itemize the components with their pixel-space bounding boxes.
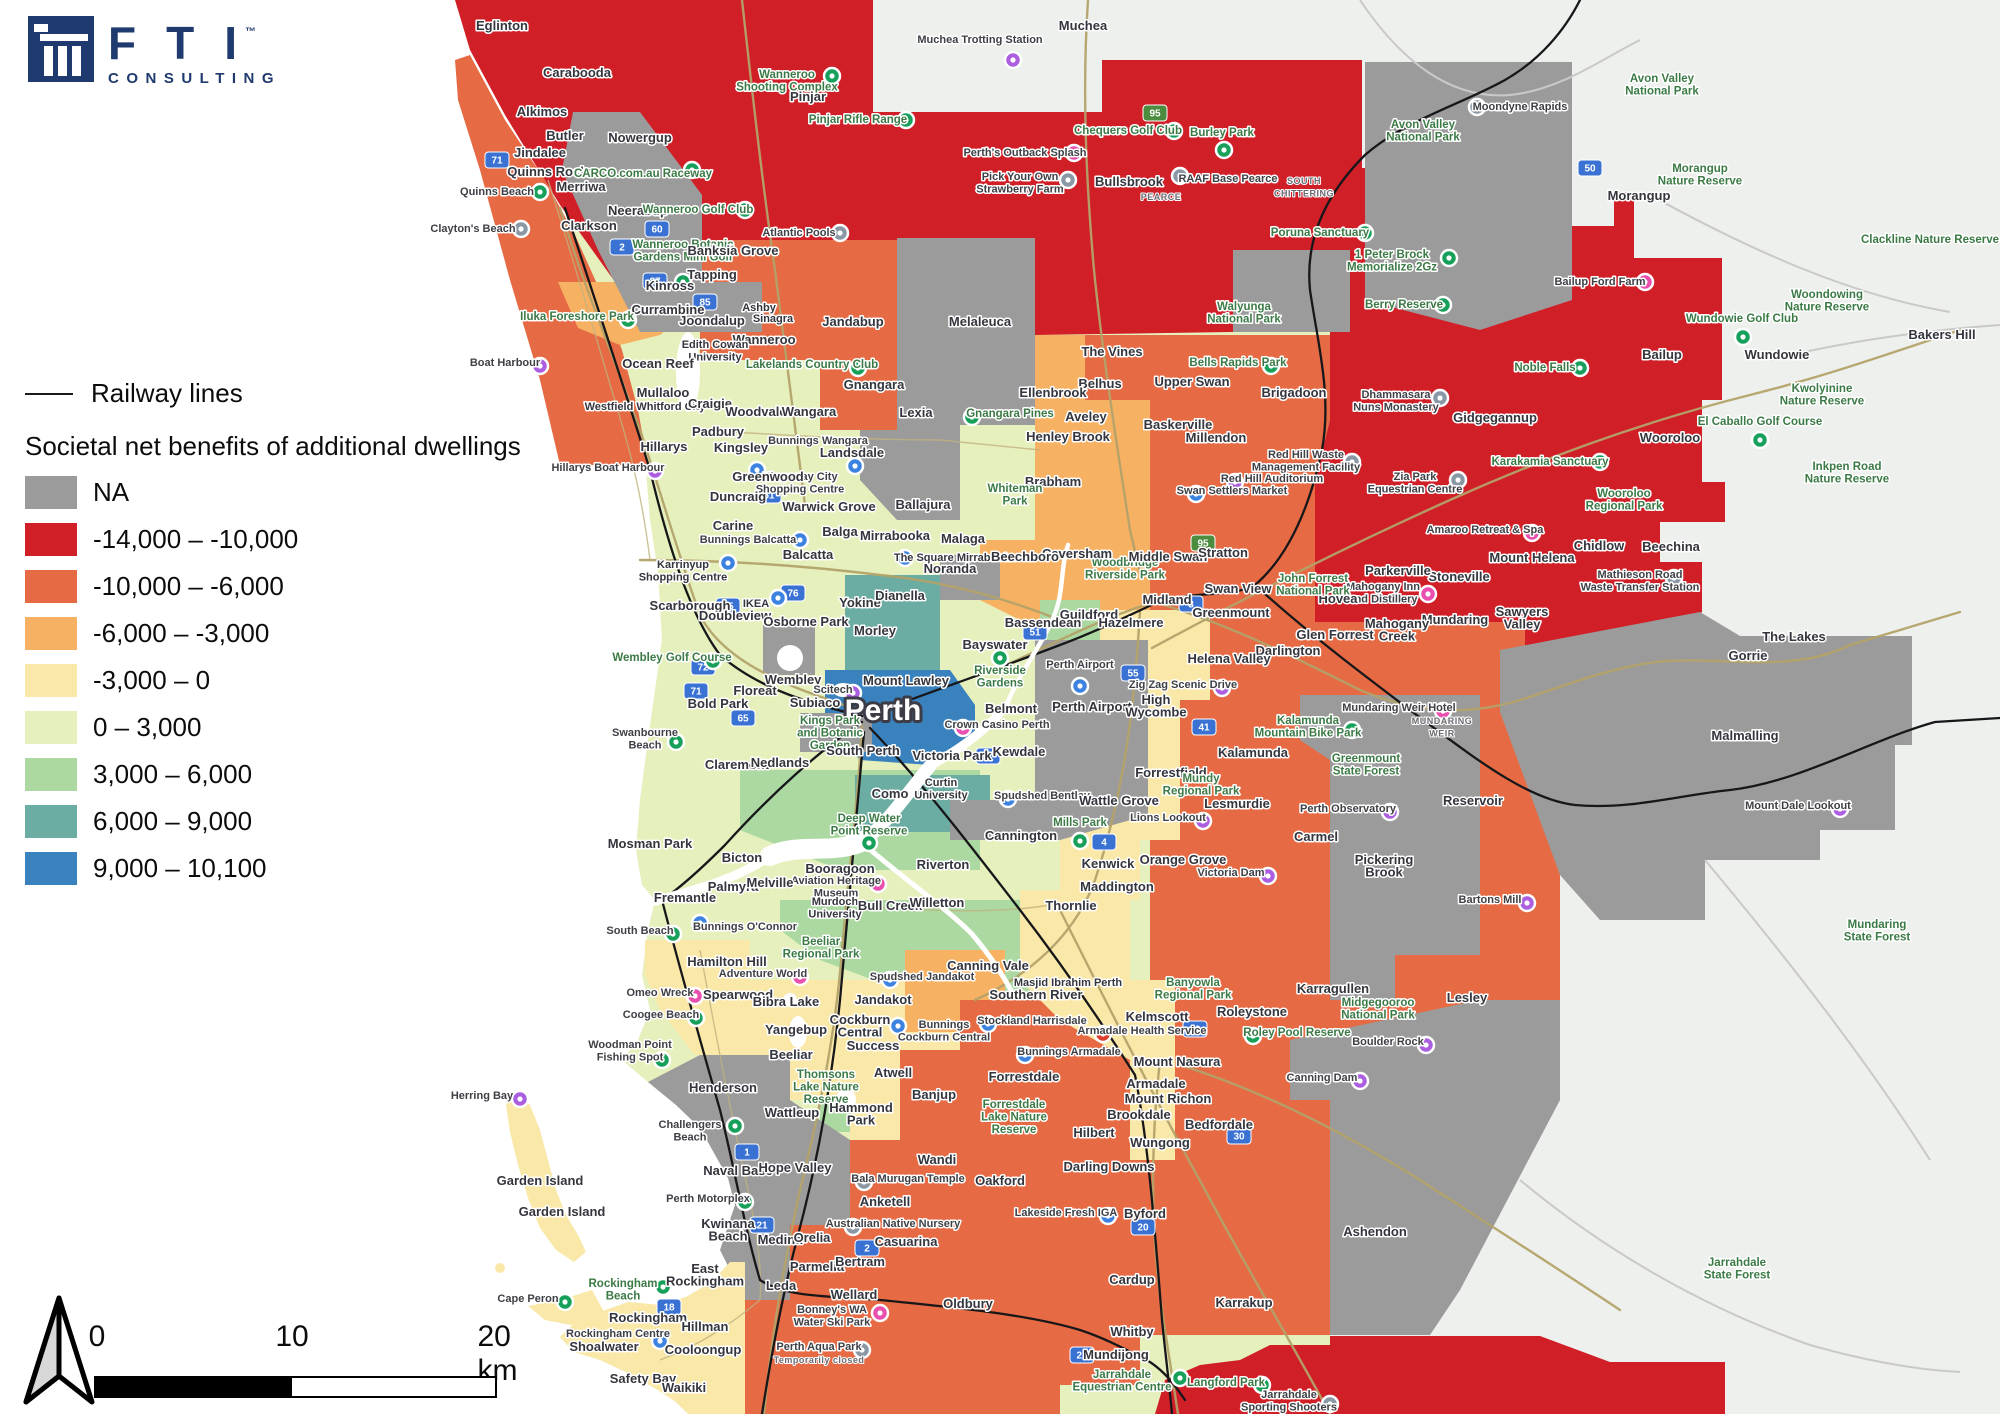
map-label: Langford Park bbox=[1187, 1377, 1266, 1389]
route-shield: 2 bbox=[610, 239, 634, 255]
legend-class-label: 3,000 – 6,000 bbox=[93, 759, 252, 790]
map-label: Karakamia Sanctuary bbox=[1492, 456, 1610, 468]
map-label: Melville bbox=[747, 875, 794, 890]
legend-swatch bbox=[25, 758, 77, 791]
legend-item: -3,000 – 0 bbox=[25, 664, 585, 697]
map-label: Henderson bbox=[689, 1080, 757, 1095]
svg-text:60: 60 bbox=[651, 225, 663, 236]
map-label: Wooroloo bbox=[1640, 430, 1700, 445]
map-label: Bayswater bbox=[962, 637, 1027, 652]
legend-swatch bbox=[25, 852, 77, 885]
fti-consulting-logo: FTI™ CONSULTING bbox=[28, 16, 281, 87]
map-label: Reservoir bbox=[1443, 793, 1503, 808]
map-label: Bedfordale bbox=[1185, 1117, 1253, 1132]
poi-pin bbox=[720, 555, 736, 571]
map-label: South Beach bbox=[606, 925, 674, 937]
poi-pin bbox=[1005, 52, 1021, 68]
map-label: Adventure World bbox=[719, 968, 807, 980]
map-label: WalyungaNational Park bbox=[1207, 301, 1281, 326]
map-label: Banksia Grove bbox=[687, 243, 778, 258]
map-label: KwinanaBeach bbox=[701, 1216, 755, 1244]
map-label: 1 Peter BrockMemorialize 2Gz bbox=[1347, 249, 1437, 274]
map-label: Zig Zag Scenic Drive bbox=[1129, 679, 1237, 691]
map-label: Gidgegannup bbox=[1453, 410, 1537, 425]
map-label: Middle Swan bbox=[1129, 549, 1208, 564]
map-label: Muchea Trotting Station bbox=[917, 34, 1043, 46]
map-label: Bicton bbox=[722, 850, 763, 865]
map-label: Parkerville bbox=[1365, 563, 1431, 578]
map-label: Mundaring Weir Hotel bbox=[1342, 702, 1455, 714]
map-label: Hillarys bbox=[641, 439, 688, 454]
map-label: Brookdale bbox=[1107, 1107, 1171, 1122]
svg-text:76: 76 bbox=[787, 589, 799, 600]
map-label: Southern River bbox=[989, 987, 1082, 1002]
legend-title: Societal net benefits of additional dwel… bbox=[25, 431, 585, 462]
map-label: Bailup Ford Farm bbox=[1554, 276, 1645, 288]
map-label: Landsdale bbox=[820, 445, 884, 460]
map-label: Morangup bbox=[1608, 188, 1671, 203]
map-label: Coogee Beach bbox=[623, 1009, 700, 1021]
poi-pin bbox=[1420, 586, 1436, 602]
scale-tick-0: 0 bbox=[89, 1320, 106, 1354]
map-label: Beechina bbox=[1642, 539, 1701, 554]
scale-tick-10: 10 bbox=[275, 1320, 308, 1354]
map-label: Millendon bbox=[1186, 430, 1247, 445]
map-label: Victoria Dam bbox=[1197, 867, 1264, 879]
map-label: Hope Valley bbox=[759, 1160, 833, 1175]
legend-class-label: -3,000 – 0 bbox=[93, 665, 210, 696]
railway-line-swatch bbox=[25, 393, 73, 395]
map-label: Eglinton bbox=[476, 18, 528, 33]
poi-pin bbox=[1735, 329, 1751, 345]
map-label: GreenmountState Forest bbox=[1332, 753, 1401, 778]
map-label: Waikiki bbox=[662, 1380, 706, 1395]
map-label: Wangara bbox=[782, 404, 837, 419]
map-label: Morley bbox=[854, 623, 897, 638]
legend-class-label: 6,000 – 9,000 bbox=[93, 806, 252, 837]
map-label: Kalamunda bbox=[1218, 745, 1289, 760]
map-label: Mullaloo bbox=[637, 385, 690, 400]
map-label: Perth Observatory bbox=[1300, 803, 1397, 815]
map-label: Lions Lookout bbox=[1130, 812, 1206, 824]
map-label: Shoalwater bbox=[569, 1339, 638, 1354]
map-label: Perth Aqua Park bbox=[776, 1341, 862, 1353]
map-label: Spudshed Jandakot bbox=[870, 971, 975, 983]
map-label: Wattleup bbox=[765, 1105, 819, 1120]
route-shield: 4 bbox=[1092, 834, 1116, 850]
map-label: Mundijong bbox=[1083, 1347, 1149, 1362]
legend-swatch bbox=[25, 476, 77, 509]
legend-item: 3,000 – 6,000 bbox=[25, 758, 585, 791]
svg-text:2: 2 bbox=[619, 243, 625, 254]
map-label: Chequers Golf Club bbox=[1074, 125, 1182, 137]
legend-class-label: -14,000 – -10,000 bbox=[93, 524, 298, 555]
poi-pin bbox=[727, 1118, 743, 1134]
map-label: Booragoon bbox=[805, 861, 874, 876]
map-label: Cannington bbox=[985, 828, 1057, 843]
map-label: Beeliar bbox=[769, 1047, 812, 1062]
map-label: Lakeside Fresh IGA bbox=[1015, 1207, 1118, 1219]
map-label: Bakers Hill bbox=[1908, 327, 1975, 342]
map-label: Stratton bbox=[1198, 545, 1248, 560]
map-label: Upper Swan bbox=[1154, 374, 1229, 389]
map-label: Woodvale bbox=[725, 404, 786, 419]
map-label: Kelmscott bbox=[1126, 1009, 1190, 1024]
scale-bar-box bbox=[94, 1376, 497, 1398]
map-label: Mirrabooka bbox=[860, 528, 931, 543]
map-label: Beechboro bbox=[991, 549, 1059, 564]
map-label: Kenwick bbox=[1082, 856, 1136, 871]
map-label: South Perth bbox=[826, 743, 900, 758]
map-label: Melaleuca bbox=[949, 314, 1012, 329]
map-label: Wungong bbox=[1130, 1135, 1190, 1150]
map-label: Riverton bbox=[917, 857, 970, 872]
map-label: Garden Island bbox=[497, 1173, 584, 1188]
route-shield: 60 bbox=[645, 221, 669, 237]
poi-pin bbox=[1072, 678, 1088, 694]
map-label: Tapping bbox=[687, 267, 737, 282]
map-label: Mosman Park bbox=[608, 836, 693, 851]
map-label: The Lakes bbox=[1762, 629, 1826, 644]
map-label: Banjup bbox=[912, 1087, 956, 1102]
map-label: Oakford bbox=[975, 1173, 1025, 1188]
map-label: Yangebup bbox=[765, 1022, 827, 1037]
legend-class-label: 0 – 3,000 bbox=[93, 712, 201, 743]
map-label: Gnangara Pines bbox=[966, 408, 1054, 420]
poi-pin bbox=[532, 184, 548, 200]
legend-class-label: NA bbox=[93, 477, 129, 508]
map-label: Mills Park bbox=[1053, 817, 1107, 829]
map-label: Noranda bbox=[924, 561, 978, 576]
legend-swatch bbox=[25, 617, 77, 650]
map-label: Iluka Foreshore Park bbox=[520, 311, 634, 323]
map-label: Como bbox=[872, 786, 909, 801]
map-label: KwolyinineNature Reserve bbox=[1780, 383, 1864, 408]
map-label: CARCO.com.au Raceway bbox=[574, 168, 713, 180]
map-label: RiversideGardens bbox=[974, 665, 1026, 690]
map-label: Wellard bbox=[831, 1287, 878, 1302]
map-label: Bailup bbox=[1642, 347, 1682, 362]
map-label: Hilbert bbox=[1073, 1125, 1115, 1140]
poi-pin bbox=[992, 650, 1008, 666]
map-label: Canning Dam bbox=[1287, 1072, 1358, 1084]
map-label: Poruna Sanctuary bbox=[1271, 227, 1370, 239]
legend-item: 9,000 – 10,100 bbox=[25, 852, 585, 885]
map-label: Karragullen bbox=[1297, 981, 1369, 996]
legend-swatch bbox=[25, 805, 77, 838]
map-label: Stoneville bbox=[1428, 569, 1489, 584]
route-shield: 1 bbox=[735, 1144, 759, 1160]
map-label: Willetton bbox=[910, 895, 965, 910]
map-label: Helena Valley bbox=[1187, 651, 1271, 666]
poi-pin bbox=[1172, 1370, 1188, 1386]
route-shield: 95 bbox=[1143, 105, 1167, 121]
map-label: Armadale bbox=[1126, 1076, 1185, 1091]
map-label: Brigadoon bbox=[1262, 385, 1327, 400]
map-label: Duncraig bbox=[710, 489, 766, 504]
map-label: Quinns Beach bbox=[460, 186, 534, 198]
legend-railway-row: Railway lines bbox=[25, 378, 585, 409]
legend-item: -6,000 – -3,000 bbox=[25, 617, 585, 650]
legend-class-label: -10,000 – -6,000 bbox=[93, 571, 284, 602]
map-label: Omeo Wreck bbox=[626, 987, 694, 999]
legend: Railway lines Societal net benefits of a… bbox=[25, 378, 585, 899]
map-label: Orange Grove bbox=[1140, 852, 1227, 867]
map-label: Balcatta bbox=[783, 547, 834, 562]
map-label: Gorrie bbox=[1728, 648, 1767, 663]
map-label: Greenwood bbox=[732, 469, 804, 484]
map-label: Wundowie bbox=[1745, 347, 1810, 362]
scale-bar: 0 10 20 km bbox=[0, 1290, 560, 1414]
poi-pin bbox=[512, 1091, 528, 1107]
map-label: Red Hill Auditorium bbox=[1221, 473, 1323, 485]
map-label: Ocean Reef bbox=[622, 356, 694, 371]
map-label: Carmel bbox=[1294, 829, 1338, 844]
map-label: Bartons Mill bbox=[1459, 894, 1522, 906]
map-label: Karrakup bbox=[1215, 1295, 1272, 1310]
map-label: Padbury bbox=[692, 424, 745, 439]
railway-label: Railway lines bbox=[91, 378, 243, 409]
map-label: Subiaco bbox=[790, 695, 841, 710]
map-label: Swan View bbox=[1205, 581, 1273, 596]
map-label: Aveley bbox=[1065, 409, 1107, 424]
poi-pin bbox=[1441, 250, 1457, 266]
brand-name: FTI bbox=[108, 17, 267, 69]
fti-column-icon bbox=[28, 16, 94, 82]
map-label: Moondyne Rapids bbox=[1473, 101, 1568, 113]
map-label: Darling Downs bbox=[1063, 1159, 1154, 1174]
map-label: Cooloongup bbox=[665, 1342, 742, 1357]
map-label: John ForrestNational Park bbox=[1276, 573, 1350, 598]
map-label: Oldbury bbox=[943, 1296, 994, 1311]
poi-pin bbox=[847, 458, 863, 474]
map-label: Muchea bbox=[1059, 18, 1108, 33]
map-label: Chidlow bbox=[1574, 538, 1625, 553]
map-label: Anketell bbox=[860, 1194, 911, 1209]
map-label: Perth Airport bbox=[1046, 659, 1114, 671]
map-label: Spudshed Bentley bbox=[994, 790, 1091, 802]
map-label: Australian Native Nursery bbox=[826, 1218, 961, 1230]
map-label: Roley Pool Reserve bbox=[1243, 1027, 1350, 1039]
map-label: CockburnCentral bbox=[830, 1012, 891, 1040]
map-label: Balga bbox=[822, 524, 858, 539]
map-label: Stockland Harrisdale bbox=[977, 1015, 1086, 1027]
map-label: Butler bbox=[546, 128, 584, 143]
map-label: Osborne Park bbox=[763, 614, 849, 629]
map-label: Pinjar Rifle Range bbox=[809, 114, 907, 126]
map-label: Hazelmere bbox=[1098, 615, 1163, 630]
map-label: Woodman PointFishing Spot bbox=[588, 1039, 672, 1064]
map-label: Byford bbox=[1124, 1206, 1166, 1221]
poi-pin bbox=[1072, 833, 1088, 849]
legend-classes: NA-14,000 – -10,000-10,000 – -6,000-6,00… bbox=[25, 476, 585, 885]
svg-text:2: 2 bbox=[864, 1244, 870, 1255]
map-label: Garden Island bbox=[519, 1204, 606, 1219]
map-label: Kewdale bbox=[993, 744, 1046, 759]
svg-text:30: 30 bbox=[1233, 1132, 1245, 1143]
map-label: Berry Reserve bbox=[1365, 299, 1443, 311]
map-label: Bells Rapids Park bbox=[1189, 357, 1287, 369]
map-label: Mount Dale Lookout bbox=[1745, 800, 1851, 812]
route-shield: 71 bbox=[485, 152, 509, 168]
map-label: Jindalee bbox=[514, 145, 566, 160]
map-label: Roleystone bbox=[1217, 1004, 1287, 1019]
svg-text:21: 21 bbox=[756, 1221, 768, 1232]
map-label: Inkpen RoadNature Reserve bbox=[1805, 461, 1889, 486]
poi-pin bbox=[1216, 142, 1232, 158]
scale-bar-fill bbox=[96, 1378, 292, 1396]
svg-text:4: 4 bbox=[1101, 838, 1107, 849]
map-label: Pinjar bbox=[790, 89, 826, 104]
map-label: Mount Richon bbox=[1125, 1091, 1212, 1106]
svg-text:55: 55 bbox=[1127, 669, 1139, 680]
map-label: Temporarily closed bbox=[774, 1355, 865, 1365]
map-label: Mount Nasura bbox=[1134, 1054, 1221, 1069]
map-label: Bunnings Armadale bbox=[1017, 1046, 1121, 1058]
map-label: Bunnings O'Connor bbox=[693, 921, 798, 933]
map-label: Lesley bbox=[1447, 990, 1488, 1005]
legend-item: -10,000 – -6,000 bbox=[25, 570, 585, 603]
map-label: JarrahdaleState Forest bbox=[1704, 1257, 1771, 1282]
map-label: Rockingham bbox=[609, 1310, 687, 1325]
map-label: Thornlie bbox=[1045, 898, 1096, 913]
map-label: Kinross bbox=[646, 278, 694, 293]
map-label: Burley Park bbox=[1190, 127, 1255, 139]
map-label: Avon ValleyNational Park bbox=[1625, 73, 1699, 98]
legend-swatch bbox=[25, 523, 77, 556]
map-label: Lakelands Country Club bbox=[746, 359, 878, 371]
map-label: Mathieson RoadWaste Transfer Station bbox=[1581, 569, 1700, 594]
map-label: RAAF Base Pearce bbox=[1178, 173, 1277, 185]
map-label: Fremantle bbox=[654, 890, 716, 905]
map-label: Bullsbrook bbox=[1095, 174, 1164, 189]
map-label: Crown Casino Perth bbox=[944, 719, 1049, 731]
legend-item: 0 – 3,000 bbox=[25, 711, 585, 744]
map-label: Belmont bbox=[985, 701, 1038, 716]
map-label: Bunnings Balcatta bbox=[700, 534, 797, 546]
map-label: Clackline Nature Reserve bbox=[1861, 234, 1999, 246]
map-label: Doubleview bbox=[699, 608, 772, 623]
map-label: Bonney's WAWater Ski Park bbox=[794, 1304, 872, 1329]
legend-swatch bbox=[25, 570, 77, 603]
map-label: Perth's Outback Splash bbox=[963, 147, 1086, 159]
svg-text:71: 71 bbox=[491, 156, 503, 167]
map-label: Wandi bbox=[918, 1152, 957, 1167]
map-label: Wanneroo Golf Club bbox=[643, 204, 754, 216]
map-label: Nowergup bbox=[608, 130, 672, 145]
map-label: Jandabup bbox=[822, 314, 883, 329]
legend-item: NA bbox=[25, 476, 585, 509]
map-label: Atlantic Pools bbox=[762, 227, 835, 239]
poi-pin bbox=[1752, 432, 1768, 448]
route-shield: 41 bbox=[1192, 719, 1216, 735]
map-label: Jandakot bbox=[854, 992, 912, 1007]
map-label: Leda bbox=[766, 1278, 797, 1293]
map-label: Lexia bbox=[899, 405, 933, 420]
map-label: Bala Murugan Temple bbox=[851, 1173, 964, 1185]
map-label: Boulder Rock bbox=[1352, 1036, 1424, 1048]
map-label: Ashendon bbox=[1343, 1224, 1407, 1239]
map-label: Bibra Lake bbox=[753, 994, 819, 1009]
map-label: Malmalling bbox=[1711, 728, 1778, 743]
map-label: DhammasaraNuns Monastery bbox=[1353, 389, 1439, 414]
map-label: The Vines bbox=[1081, 344, 1142, 359]
map-label: PEARCE bbox=[1141, 192, 1182, 202]
trademark-symbol: ™ bbox=[245, 26, 256, 38]
map-label: Masjid Ibrahim Perth bbox=[1014, 977, 1122, 989]
map-label: Lesmurdie bbox=[1204, 796, 1270, 811]
svg-text:41: 41 bbox=[1198, 723, 1210, 734]
map-label: Gnangara bbox=[844, 377, 905, 392]
map-label: Mundaring bbox=[1422, 612, 1488, 627]
map-label: Maddington bbox=[1080, 879, 1154, 894]
map-label: Perth Airport bbox=[1052, 699, 1132, 714]
map-label: Hillman bbox=[682, 1319, 729, 1334]
map-label: Wattle Grove bbox=[1079, 793, 1159, 808]
map-label: Armadale Health Service bbox=[1077, 1025, 1206, 1037]
map-label: Atwell bbox=[874, 1065, 912, 1080]
map-label: Kingsley bbox=[714, 440, 769, 455]
map-label: MurdochUniversity bbox=[808, 896, 862, 921]
map-label: Pick Your OwnStrawberry Farm bbox=[976, 171, 1064, 196]
map-label: Bold Park bbox=[688, 696, 749, 711]
map-label: Merriwa bbox=[556, 179, 606, 194]
map-label: Herring Bay bbox=[451, 1090, 514, 1102]
map-label: Clayton's Beach bbox=[430, 223, 515, 235]
map-label: Amaroo Retreat & Spa bbox=[1427, 524, 1545, 536]
route-shield: 50 bbox=[1578, 160, 1602, 176]
map-label: Victoria Park bbox=[912, 748, 992, 763]
svg-text:50: 50 bbox=[1584, 164, 1596, 175]
map-label: Cardup bbox=[1109, 1272, 1155, 1287]
legend-swatch bbox=[25, 664, 77, 697]
map-label: Hamilton Hill bbox=[687, 954, 766, 969]
map-label: Henley Brook bbox=[1026, 429, 1111, 444]
map-label: Joondalup bbox=[679, 313, 745, 328]
map-label: Carabooda bbox=[543, 65, 612, 80]
map-label: Bertram bbox=[835, 1254, 885, 1269]
map-label: MidgegoorooNational Park bbox=[1341, 997, 1415, 1022]
map-label: Greenmount bbox=[1192, 605, 1270, 620]
brand-subtitle: CONSULTING bbox=[108, 70, 281, 87]
legend-item: -14,000 – -10,000 bbox=[25, 523, 585, 556]
map-label: Ballajura bbox=[896, 497, 952, 512]
map-label: Whitby bbox=[1110, 1324, 1154, 1339]
map-label: Bassendean bbox=[1005, 615, 1082, 630]
map-label: Dianella bbox=[875, 588, 926, 603]
svg-text:1: 1 bbox=[744, 1148, 750, 1159]
map-label: Carine bbox=[713, 518, 753, 533]
map-label: Deep WaterPoint Reserve bbox=[831, 813, 908, 838]
route-shield: 20 bbox=[1131, 1219, 1155, 1235]
map-label: Glen Forrest bbox=[1296, 627, 1374, 642]
map-label: Warwick Grove bbox=[782, 499, 875, 514]
map-label: Nedlands bbox=[751, 755, 810, 770]
map-label: Clarkson bbox=[561, 218, 617, 233]
poi-pin bbox=[872, 1305, 888, 1321]
poi-pin bbox=[770, 590, 786, 606]
legend-class-label: 9,000 – 10,100 bbox=[93, 853, 267, 884]
map-label: Boat Harbour bbox=[470, 357, 541, 369]
map-label: Swan Settlers Market bbox=[1177, 485, 1288, 497]
map-label: Malaga bbox=[941, 531, 986, 546]
map-label: Mount Lawley bbox=[863, 673, 950, 688]
map-label: Casuarina bbox=[875, 1234, 939, 1249]
map-label: Success bbox=[847, 1038, 900, 1053]
map-label: Forrestdale bbox=[989, 1069, 1060, 1084]
map-label: Orelia bbox=[794, 1230, 832, 1245]
legend-class-label: -6,000 – -3,000 bbox=[93, 618, 269, 649]
